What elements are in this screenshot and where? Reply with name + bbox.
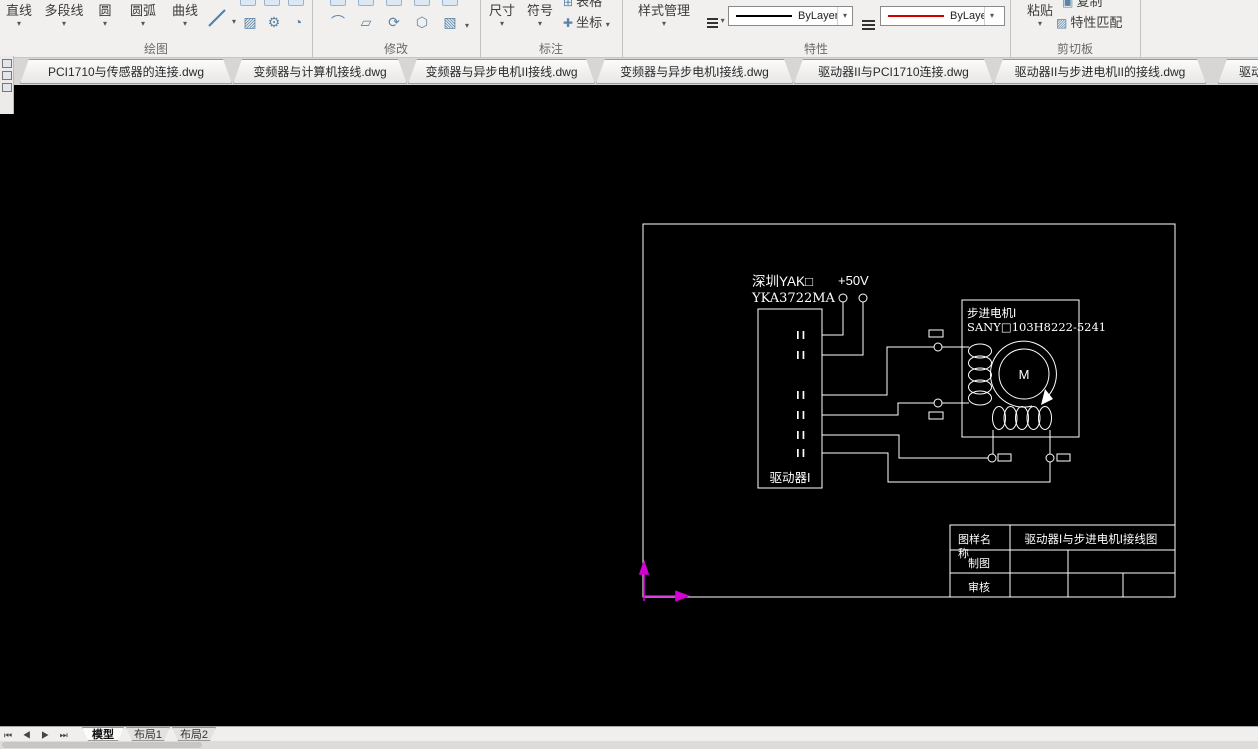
chamfer-icon[interactable]: ▱ [356,12,376,32]
draw-panel-label: 绘图 [0,40,312,56]
svg-text:驱动器I: 驱动器I [770,471,811,485]
partial-icon[interactable] [264,0,280,6]
hatch-icon[interactable]: ▨ [240,12,260,32]
horizontal-scrollbar[interactable] [0,741,1258,749]
spline-button[interactable]: 曲线 ▾ [166,2,204,28]
chevron-down-icon: ▾ [166,19,204,28]
region-icon[interactable]: ⚙ [264,12,284,32]
match-properties-button[interactable]: ▨特性匹配 [1056,12,1122,32]
palette-icon [2,71,12,80]
file-tab-2[interactable]: 变频器与计算机接线.dwg [233,59,407,84]
line-button[interactable]: 直线 ▾ [2,2,36,28]
linetype-sample [736,15,792,17]
coordinate-button[interactable]: ✚坐标 ▾ [563,12,610,32]
driver-box: 驱动器I [758,309,822,488]
style-manager-button[interactable]: 样式管理 ▾ [628,2,700,28]
partial-icon[interactable] [386,0,402,6]
left-tool-strip[interactable] [0,56,14,114]
copy-icon: ▣ [1062,0,1073,9]
tab-layout2[interactable]: 布局2 [172,727,216,741]
file-tab-1[interactable]: PCI1710与传感器的连接.dwg [20,59,232,84]
clipboard-panel-label: 剪切板 [1010,40,1140,56]
circle-button[interactable]: 圆 ▾ [92,2,118,28]
chevron-down-icon: ▾ [2,19,36,28]
sheet-tab-bar: ⏮ ◀ ▶ ⏭ 模型 布局1 布局2 [0,726,1258,741]
symbol-button[interactable]: 符号 ▾ [524,2,556,28]
properties-panel-label: 特性 [622,40,1010,56]
terminal-circle [859,294,867,302]
vendor-name: 深圳YAK□ [752,274,813,289]
file-tab-6[interactable]: 驱动器II与步进电机II的接线.dwg [994,59,1206,84]
paste-button[interactable]: 粘贴 ▾ [1022,2,1058,28]
svg-text:SANY□103H8222-5241: SANY□103H8222-5241 [967,320,1106,334]
ribbon: 直线 ▾ 多段线 ▾ 圆 ▾ 圆弧 ▾ 曲线 ▾ ▾ ▨ ⚙ ◔ 绘图 ⌒ ▱ … [0,0,1258,58]
chevron-down-icon[interactable]: ▾ [229,12,239,32]
chevron-down-icon: ▾ [524,19,556,28]
chevron-down-icon: ▾ [606,20,610,29]
annotate-panel-label: 标注 [480,40,622,56]
edit-hatch-icon[interactable]: ▧ [440,12,460,32]
svg-text:图样名: 图样名 [958,532,991,546]
linetype-select[interactable]: ByLayer ▾ [728,6,853,26]
motor-box: 步进电机I SANY□103H8222-5241 M [962,300,1106,437]
layer-list-icon[interactable]: ▾ [703,8,729,28]
copy-button[interactable]: ▣复制 [1062,0,1102,11]
file-tab-4[interactable]: 变频器与异步电机I接线.dwg [596,59,793,84]
color-sample [888,15,944,17]
scrollbar-thumb[interactable] [2,742,202,748]
partial-icon[interactable] [442,0,458,6]
coil-horizontal [993,407,1052,430]
file-tab-3[interactable]: 变频器与异步电机II接线.dwg [408,59,595,84]
gradient-icon[interactable]: ◔ [288,12,308,32]
dimension-button[interactable]: 尺寸 ▾ [486,2,518,28]
chevron-down-icon: ▾ [984,7,999,25]
dwg-drawing: 驱动器I 深圳YAK□ YKA3722MA +50V [0,85,1258,726]
coil-vertical [969,344,992,405]
chevron-down-icon: ▾ [628,19,700,28]
chevron-down-icon: ▾ [92,19,118,28]
3d-box-icon[interactable]: ⬡ [412,12,432,32]
lineweight-icon[interactable] [858,10,878,30]
fillet-icon[interactable]: ⌒ [328,12,348,32]
color-select[interactable]: ByLayer ▾ [880,6,1005,26]
chevron-down-icon: ▾ [38,19,90,28]
rotate-icon[interactable]: ⟳ [384,12,404,32]
file-tab-bar: PCI1710与传感器的连接.dwg 变频器与计算机接线.dwg 变频器与异步电… [0,58,1258,85]
file-tab-5[interactable]: 驱动器II与PCI1710连接.dwg [794,59,993,84]
svg-text:审核: 审核 [968,580,990,594]
modify-panel-label: 修改 [312,40,480,56]
table-button[interactable]: ⊞表格 [563,0,602,11]
chevron-down-icon: ▾ [837,7,852,25]
svg-text:步进电机I: 步进电机I [967,306,1016,320]
partial-icon[interactable] [414,0,430,6]
polyline-button[interactable]: 多段线 ▾ [38,2,90,28]
drawing-canvas[interactable]: 驱动器I 深圳YAK□ YKA3722MA +50V [0,85,1258,726]
vendor-model: YKA3722MA [751,291,836,306]
partial-icon[interactable] [330,0,346,6]
partial-icon[interactable] [358,0,374,6]
motor-symbol: M [1019,367,1030,382]
title-block: 图样名 称 制图 审核 驱动器I与步进电机I接线图 [950,525,1175,597]
partial-icon[interactable] [288,0,304,6]
chevron-down-icon[interactable]: ▾ [462,16,472,36]
sheet-icon [2,59,12,68]
chevron-down-icon: ▾ [486,19,518,28]
svg-text:驱动器I与步进电机I接线图: 驱动器I与步进电机I接线图 [1025,532,1158,546]
tab-model[interactable]: 模型 [82,727,124,741]
brush-icon: ▨ [1056,16,1067,30]
file-tab-7[interactable]: 驱动 [1218,59,1258,84]
ucs-icon [640,562,688,601]
voltage-label: +50V [838,273,869,288]
chevron-down-icon: ▾ [122,19,164,28]
chevron-down-icon: ▾ [1022,19,1058,28]
partial-icon[interactable] [240,0,256,6]
table-icon: ⊞ [563,0,573,9]
terminal-circle [839,294,847,302]
construction-line-icon[interactable] [205,6,229,30]
svg-text:制图: 制图 [968,557,990,570]
tab-layout1[interactable]: 布局1 [126,727,170,741]
grid-icon [2,83,12,92]
arc-button[interactable]: 圆弧 ▾ [122,2,164,28]
sheet-nav-arrows[interactable]: ⏮ ◀ ▶ ⏭ [4,728,72,742]
coordinate-icon: ✚ [563,16,573,30]
